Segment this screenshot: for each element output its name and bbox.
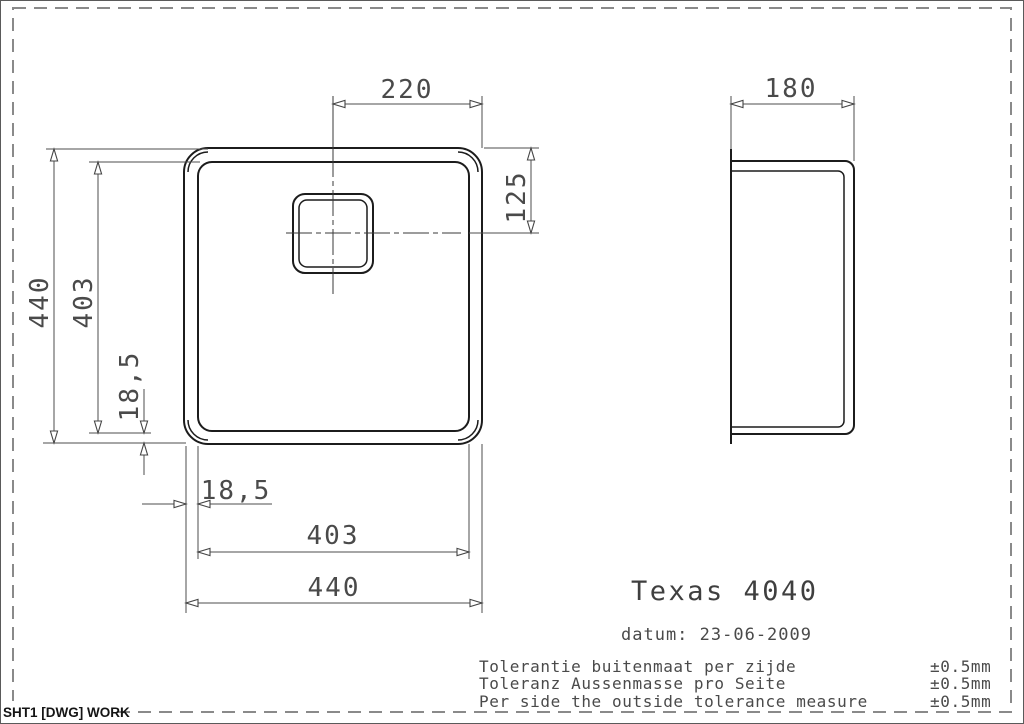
drawing-frame [13, 8, 1011, 712]
dim-text-440-bottom: 440 [308, 573, 361, 603]
dim-text-403-bottom: 403 [307, 521, 360, 551]
side-bowl-outer [731, 161, 854, 434]
tolerance-note-en: Per side the outside tolerance measure [479, 692, 868, 711]
dim-text-18-5-left: 18,5 [115, 351, 145, 422]
tolerance-value-en: ±0.5mm [930, 692, 991, 711]
drawing-sheet: 220 125 440 403 18,5 18,5 403 [0, 0, 1024, 724]
top-view-dimensions: 220 125 440 403 18,5 18,5 403 [25, 75, 539, 613]
drawing-canvas: 220 125 440 403 18,5 18,5 403 [1, 1, 1023, 723]
dim-text-440-left: 440 [25, 276, 55, 329]
dim-text-180: 180 [765, 74, 818, 104]
dim-text-125: 125 [502, 171, 532, 224]
dim-text-403-left: 403 [69, 276, 99, 329]
title-block: Texas 4040 datum: 23-06-2009 Tolerantie … [479, 576, 991, 711]
tolerance-value-de: ±0.5mm [930, 674, 991, 693]
dim-text-18-5-bottom: 18,5 [201, 476, 272, 506]
side-bowl-inner [731, 171, 844, 427]
tolerance-note-de: Toleranz Aussenmasse pro Seite [479, 674, 786, 693]
dim-text-220: 220 [381, 75, 434, 105]
drawing-title: Texas 4040 [631, 576, 819, 607]
drawing-date: datum: 23-06-2009 [621, 625, 812, 645]
top-view [184, 96, 482, 444]
side-view: 180 [731, 74, 854, 444]
sheet-label: SHT1 [DWG] WORK [3, 705, 130, 720]
